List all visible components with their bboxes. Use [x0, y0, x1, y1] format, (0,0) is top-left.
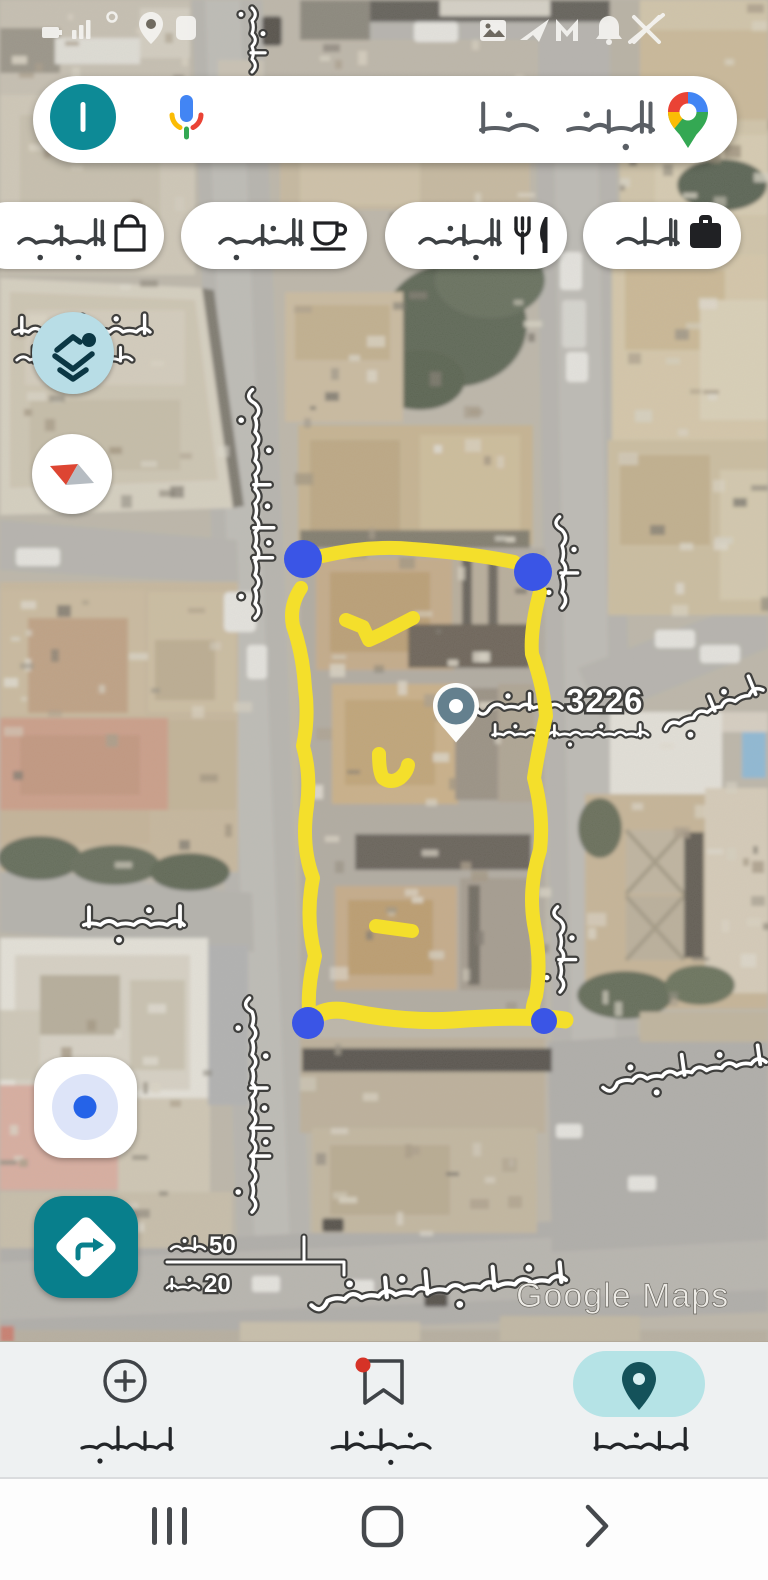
svg-text:3226: 3226: [566, 682, 643, 719]
svg-text:Google Maps: Google Maps: [516, 1277, 729, 1315]
svg-text:50: 50: [209, 1232, 236, 1259]
svg-text:20: 20: [204, 1271, 231, 1298]
